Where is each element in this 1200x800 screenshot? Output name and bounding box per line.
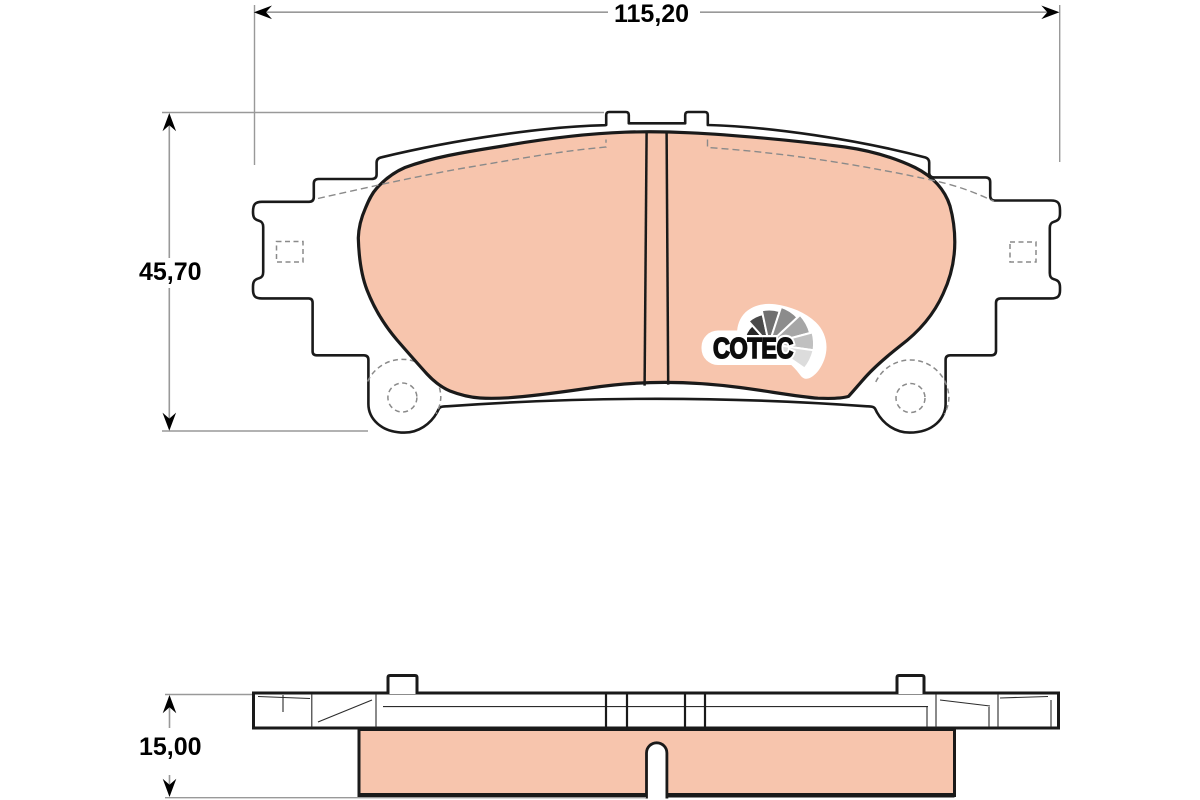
svg-text:15,00: 15,00 (139, 733, 202, 761)
svg-text:45,70: 45,70 (139, 258, 202, 286)
svg-text:COTEC: COTEC (713, 333, 793, 365)
svg-text:115,20: 115,20 (614, 0, 689, 28)
